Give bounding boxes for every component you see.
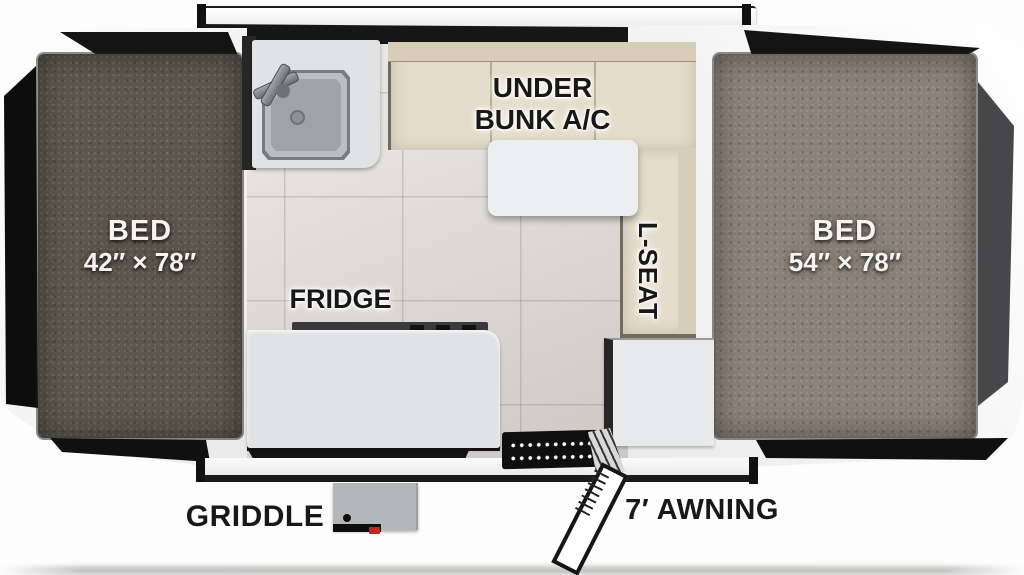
front-bed-dimensions: 42″ × 78″	[84, 249, 196, 276]
front-bed-mattress: BED 42″ × 78″	[38, 54, 242, 438]
dinette-bench-top-back	[388, 42, 696, 62]
front-wing-bottom-trim	[48, 436, 212, 464]
under-bunk-ac-line1: UNDER	[430, 72, 655, 104]
under-bunk-ac-label: UNDER BUNK A/C	[430, 72, 655, 135]
faucet-base-icon	[276, 84, 290, 98]
awning-label: 7′ AWNING	[622, 494, 782, 527]
griddle-label: GRIDDLE	[185, 500, 325, 534]
griddle-appliance	[333, 483, 418, 530]
dinette-bench-right-back	[678, 148, 696, 334]
l-seat-label: L-SEAT	[632, 222, 663, 342]
rear-bed-mattress: BED 54″ × 78″	[714, 54, 976, 438]
front-bed-label: BED	[108, 216, 172, 246]
dinette-table	[488, 140, 638, 216]
under-bunk-ac-line2: BUNK A/C	[430, 104, 655, 136]
bottom-rail-right-cap	[749, 457, 758, 484]
griddle-knob-icon	[343, 514, 351, 522]
rear-wing-bottom-trim	[754, 436, 1010, 462]
fridge-counter	[247, 330, 500, 448]
rear-bed-label: BED	[813, 216, 877, 246]
rear-bed-dimensions: 54″ × 78″	[789, 249, 901, 276]
ground-shadow	[0, 566, 1024, 575]
bottom-rail-left-cap	[196, 455, 205, 482]
dinette-cabinet	[604, 338, 714, 446]
fridge-label: FRIDGE	[268, 284, 413, 315]
popup-camper-floorplan: BED 42″ × 78″ BED 54″ × 78″	[0, 0, 1024, 575]
front-tent-canvas-side	[2, 64, 40, 412]
awning-rail	[204, 475, 757, 482]
sink-drain-icon	[290, 110, 305, 125]
griddle-valve-icon	[369, 527, 380, 534]
